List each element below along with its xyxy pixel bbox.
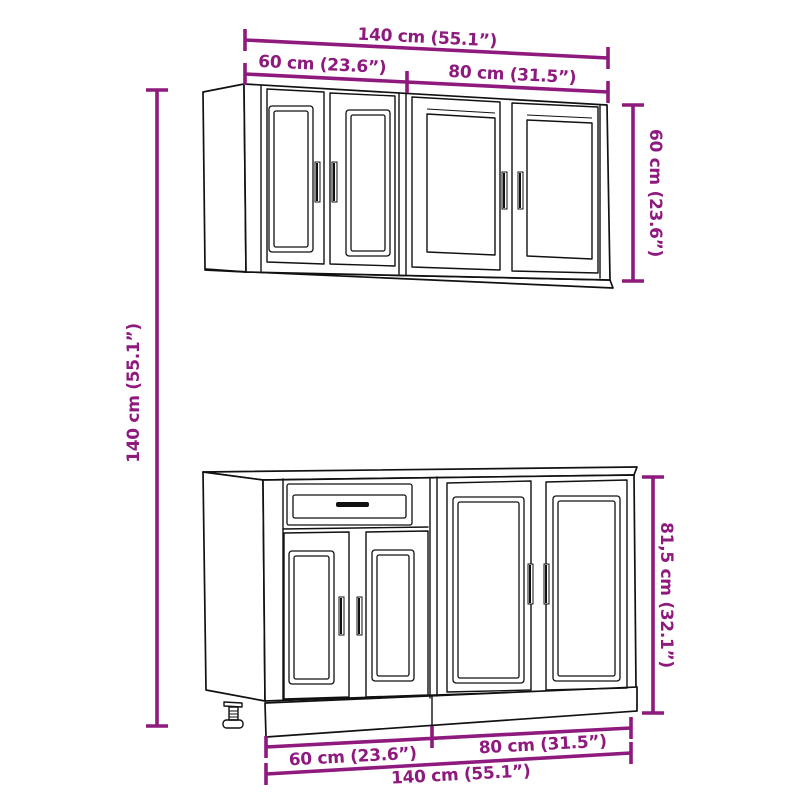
drawer-handle bbox=[336, 502, 369, 507]
panel-inner-frame bbox=[351, 115, 385, 251]
door-handle bbox=[518, 172, 523, 209]
drawer-front bbox=[287, 484, 412, 525]
dimension-line bbox=[622, 105, 644, 281]
panel-inner-frame bbox=[294, 556, 329, 679]
dim-wall-cabinet-height: 60 cm (23.6”) bbox=[622, 105, 665, 281]
door-handle bbox=[315, 162, 320, 202]
panel-inner-frame bbox=[458, 502, 519, 678]
panel-inner-frame bbox=[558, 501, 615, 676]
door-panel bbox=[553, 496, 620, 681]
door-panel bbox=[289, 551, 334, 684]
door-handle bbox=[502, 172, 507, 209]
dim-base-cabinet-height: 81,5 cm (32.1”) bbox=[642, 477, 676, 713]
dim-total-height: 140 cm (55.1”) bbox=[124, 90, 168, 726]
door-handle bbox=[332, 162, 337, 202]
door-handle bbox=[339, 597, 344, 635]
door-handle bbox=[357, 597, 362, 635]
base-cabinet-set-drawing bbox=[203, 467, 637, 737]
foot-thread-line bbox=[229, 711, 238, 717]
door-panel bbox=[453, 497, 524, 683]
door-panel bbox=[372, 550, 414, 681]
dimension-label: 140 cm (55.1”) bbox=[124, 323, 144, 463]
door-panel bbox=[346, 110, 390, 256]
foot-base bbox=[223, 720, 243, 728]
dimension-label: 60 cm (23.6”) bbox=[645, 129, 665, 257]
door-handle bbox=[544, 564, 549, 604]
panel-inner-frame bbox=[377, 555, 409, 676]
foot-plate bbox=[224, 702, 242, 707]
panel-inner-frame bbox=[274, 111, 308, 247]
dimension-line bbox=[146, 90, 168, 726]
door-handle bbox=[528, 564, 533, 604]
diagram-canvas: 140 cm (55.1”) 60 cm (23.6”) 80 cm (31.5… bbox=[0, 0, 800, 800]
door-panel bbox=[269, 106, 313, 252]
dimension-label: 81,5 cm (32.1”) bbox=[656, 522, 676, 668]
wall-cabinet-set-drawing bbox=[203, 84, 613, 288]
base-cabinet-left-side-panel bbox=[203, 472, 265, 701]
wall-cabinet-left-side-panel bbox=[203, 84, 246, 272]
adjustable-foot bbox=[223, 702, 243, 728]
